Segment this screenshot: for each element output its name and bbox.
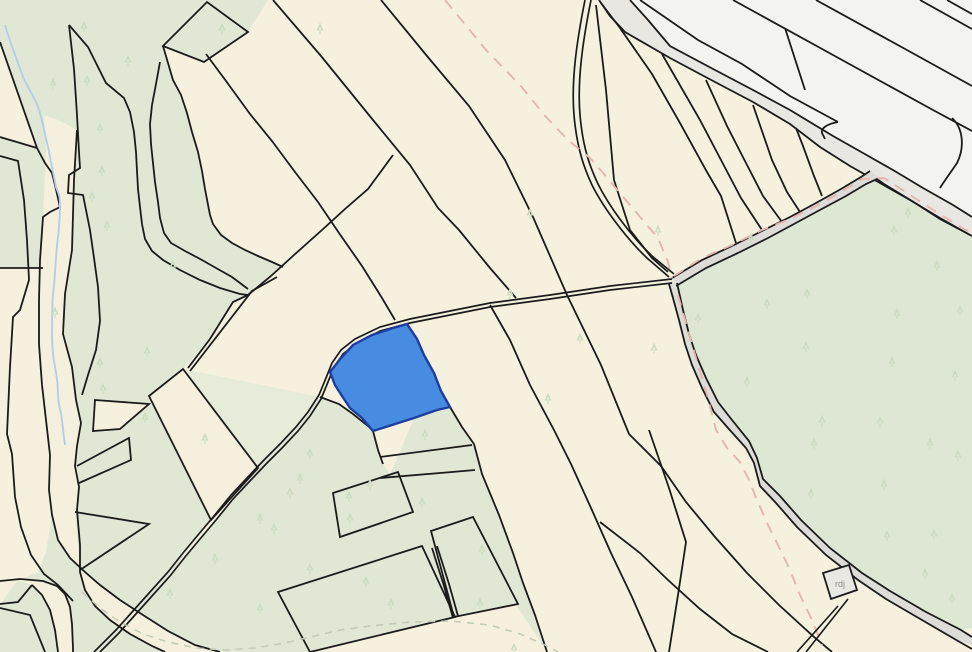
svg-text:rdj: rdj [835,579,845,589]
